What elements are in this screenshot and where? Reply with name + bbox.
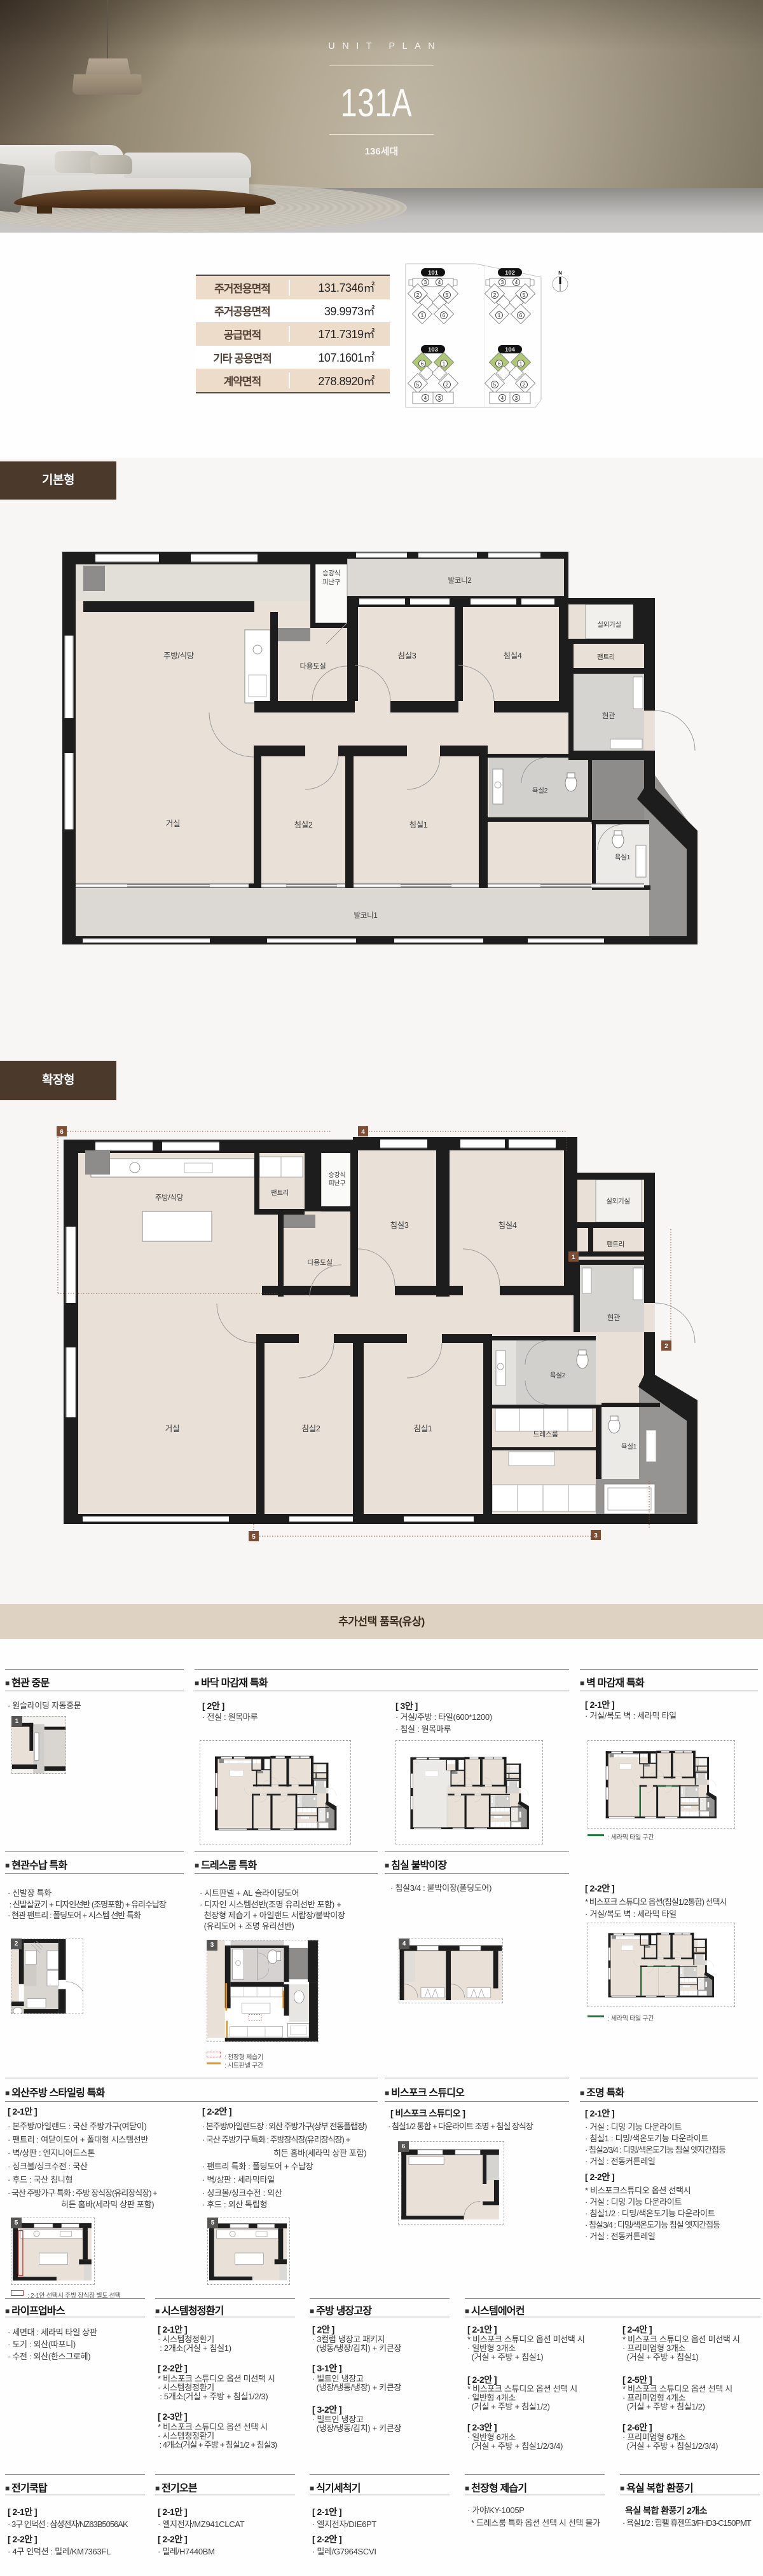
- svg-text:6: 6: [498, 361, 501, 367]
- svg-text:피난구: 피난구: [329, 1180, 346, 1187]
- svg-text:침실2: 침실2: [301, 1424, 320, 1433]
- svg-text:팬트리: 팬트리: [271, 1189, 289, 1197]
- svg-text:2: 2: [523, 382, 526, 388]
- svg-text:6: 6: [443, 313, 446, 318]
- svg-text:103: 103: [428, 346, 438, 353]
- svg-text:4: 4: [424, 395, 427, 401]
- svg-text:2: 2: [664, 1343, 668, 1350]
- svg-text:3: 3: [438, 395, 441, 401]
- svg-text:104: 104: [505, 346, 516, 353]
- svg-text:5: 5: [252, 1534, 256, 1541]
- svg-text:6: 6: [421, 361, 424, 367]
- svg-text:실외기실: 실외기실: [606, 1197, 629, 1205]
- svg-text:1: 1: [572, 1254, 575, 1261]
- svg-text:3: 3: [515, 395, 518, 401]
- svg-text:5: 5: [446, 292, 449, 298]
- svg-text:4: 4: [501, 395, 504, 401]
- svg-text:욕실2: 욕실2: [532, 787, 548, 794]
- svg-text:피난구: 피난구: [322, 578, 341, 586]
- svg-text:침실2: 침실2: [294, 821, 312, 829]
- svg-text:4: 4: [438, 280, 441, 285]
- svg-text:침실4: 침실4: [498, 1221, 516, 1230]
- svg-text:2: 2: [416, 292, 420, 298]
- svg-text:팬트리: 팬트리: [597, 653, 615, 661]
- svg-text:5: 5: [416, 382, 420, 388]
- svg-text:1: 1: [498, 313, 501, 318]
- svg-text:6: 6: [519, 313, 523, 318]
- svg-text:발코니2: 발코니2: [448, 576, 472, 585]
- svg-text:욕실2: 욕실2: [550, 1372, 566, 1379]
- svg-text:침실1: 침실1: [413, 1424, 432, 1433]
- svg-text:침실3: 침실3: [397, 651, 416, 660]
- svg-text:침실3: 침실3: [390, 1221, 408, 1230]
- svg-text:1: 1: [519, 361, 523, 367]
- svg-text:현관: 현관: [602, 712, 615, 720]
- svg-text:실외기실: 실외기실: [597, 621, 621, 629]
- svg-text:다용도실: 다용도실: [307, 1258, 332, 1267]
- svg-text:N: N: [558, 270, 562, 276]
- svg-text:4: 4: [361, 1129, 365, 1136]
- svg-text:2: 2: [446, 382, 449, 388]
- svg-text:발코니1: 발코니1: [354, 911, 378, 920]
- svg-text:3: 3: [594, 1532, 598, 1539]
- svg-text:5: 5: [523, 292, 526, 298]
- svg-text:욕실1: 욕실1: [621, 1443, 637, 1450]
- svg-text:3: 3: [501, 280, 504, 285]
- svg-text:현관: 현관: [607, 1314, 621, 1322]
- svg-text:102: 102: [505, 269, 515, 276]
- svg-text:승강식: 승강식: [322, 569, 340, 577]
- svg-text:거실: 거실: [165, 1424, 179, 1433]
- svg-text:3: 3: [424, 280, 427, 285]
- svg-text:다용도실: 다용도실: [299, 662, 326, 671]
- svg-text:팬트리: 팬트리: [607, 1241, 624, 1248]
- svg-text:주방/식당: 주방/식당: [163, 651, 195, 660]
- svg-text:거실: 거실: [166, 819, 180, 828]
- svg-text:4: 4: [515, 280, 518, 285]
- svg-text:드레스룸: 드레스룸: [533, 1430, 558, 1438]
- svg-text:욕실1: 욕실1: [615, 854, 631, 861]
- svg-text:6: 6: [60, 1129, 64, 1136]
- svg-text:주방/식당: 주방/식당: [155, 1194, 184, 1202]
- svg-text:1: 1: [421, 313, 424, 318]
- svg-text:승강식: 승강식: [329, 1171, 346, 1179]
- svg-text:침실4: 침실4: [503, 651, 521, 660]
- svg-text:2: 2: [493, 292, 497, 298]
- svg-text:101: 101: [428, 269, 439, 276]
- svg-text:5: 5: [493, 382, 497, 388]
- svg-text:1: 1: [443, 361, 446, 367]
- svg-text:침실1: 침실1: [409, 821, 427, 829]
